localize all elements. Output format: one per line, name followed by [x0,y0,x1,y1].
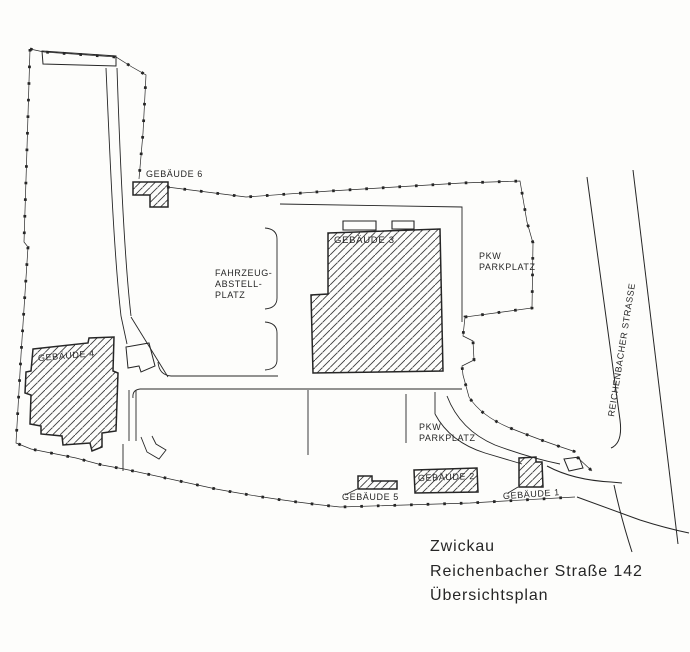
label-vehicle-yard-1: FAHRZEUG- [215,268,272,278]
label-building-3: GEBÄUDE 3 [334,235,395,246]
title-block: Zwickau Reichenbacher Straße 142 Übersic… [430,538,643,604]
building-3-rooftop-2 [392,221,414,229]
title-city: Zwickau [430,538,495,555]
title-plan-type: Übersichtsplan [430,586,548,604]
label-vehicle-yard-2: ABSTELL- [215,279,262,289]
label-vehicle-yard-3: PLATZ [215,290,245,300]
label-parking-upper-1: PKW [479,251,501,261]
title-address: Reichenbacher Straße 142 [430,563,643,580]
label-building-1: GEBÄUDE 1 [503,487,560,501]
site-plan-drawing: GEBÄUDE 6 GEBÄUDE 3 GEBÄUDE 4 GEBÄUDE 2 … [0,0,690,652]
label-building-2: GEBÄUDE 2 [418,471,475,483]
north-strip-structure [42,51,116,66]
buildings [25,182,543,495]
site-plan-page: GEBÄUDE 6 GEBÄUDE 3 GEBÄUDE 4 GEBÄUDE 2 … [0,0,690,652]
building-1 [519,457,543,487]
street-island-outline [564,457,583,471]
building-3-rooftop [343,221,376,230]
north-driveway [106,68,168,377]
label-building-6: GEBÄUDE 6 [146,169,203,179]
small-annex-outline [126,343,155,372]
label-parking-lower-2: PARKPLATZ [419,433,476,443]
building-3 [311,229,443,373]
label-parking-lower-1: PKW [419,422,441,432]
label-building-5: GEBÄUDE 5 [342,492,399,502]
building-6 [133,182,168,207]
label-parking-upper-2: PARKPLATZ [479,262,536,272]
building-5 [358,476,397,489]
